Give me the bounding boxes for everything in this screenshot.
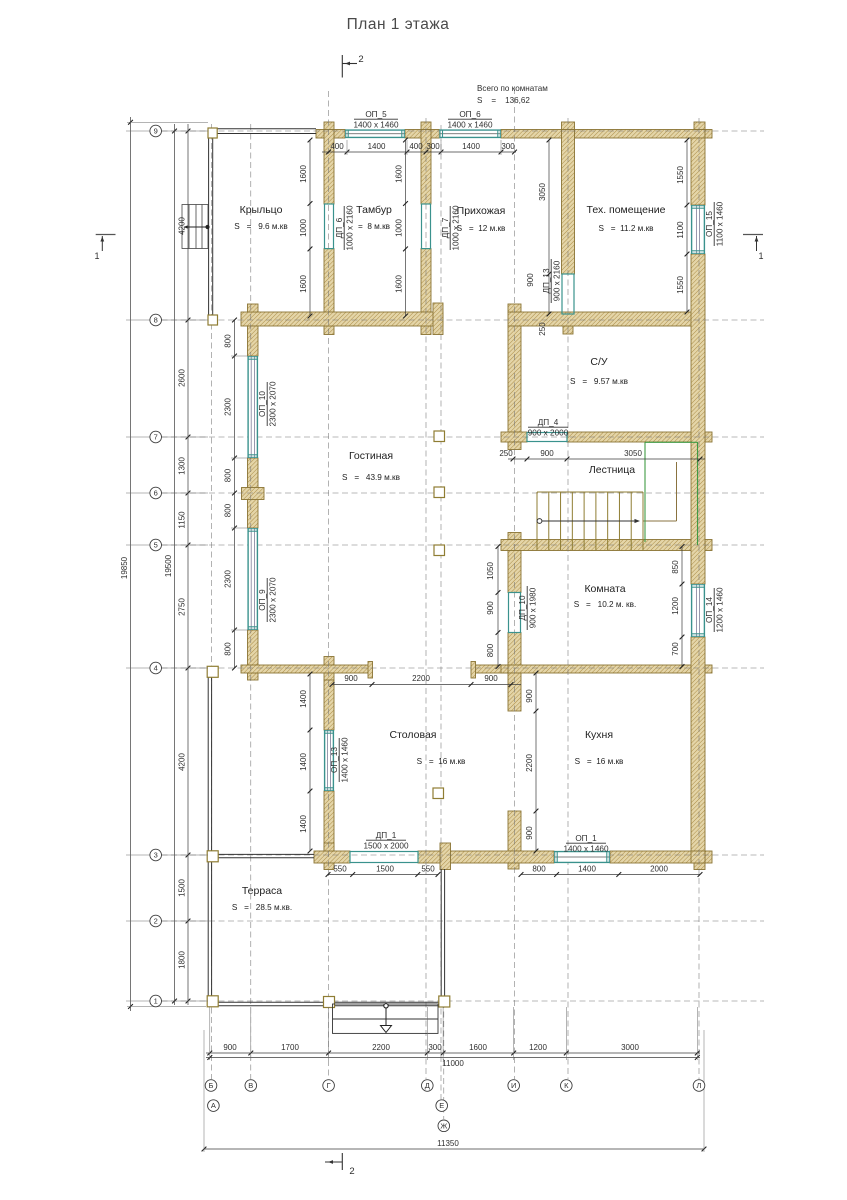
- svg-text:6: 6: [154, 489, 158, 498]
- svg-text:1000 х 2160: 1000 х 2160: [452, 205, 461, 251]
- svg-text:ОП_13: ОП_13: [330, 747, 339, 773]
- svg-text:ДП_4: ДП_4: [538, 418, 559, 427]
- svg-text:900: 900: [344, 674, 358, 683]
- svg-text:2300 х 2070: 2300 х 2070: [269, 577, 278, 623]
- svg-text:550: 550: [333, 865, 347, 874]
- svg-text:1400 х 1460: 1400 х 1460: [563, 845, 609, 854]
- svg-text:ДП_6: ДП_6: [335, 217, 344, 238]
- svg-text:550: 550: [421, 865, 435, 874]
- svg-text:850: 850: [671, 560, 680, 574]
- svg-text:800: 800: [224, 468, 233, 482]
- svg-text:Комната: Комната: [584, 583, 625, 595]
- svg-text:S = 136,62: S = 136,62: [477, 96, 530, 105]
- svg-text:S = 16 м.кв: S = 16 м.кв: [575, 757, 624, 766]
- svg-text:1600: 1600: [469, 1043, 487, 1052]
- svg-text:250: 250: [499, 449, 513, 458]
- svg-text:Крыльцо: Крыльцо: [240, 204, 283, 216]
- svg-text:1000 х 2160: 1000 х 2160: [346, 205, 355, 251]
- svg-text:1800: 1800: [178, 951, 187, 969]
- svg-text:4200: 4200: [178, 753, 187, 771]
- svg-text:План 1 этажа: План 1 этажа: [347, 16, 450, 33]
- svg-text:Прихожая: Прихожая: [457, 205, 506, 217]
- svg-text:1400: 1400: [299, 690, 308, 708]
- svg-text:900: 900: [525, 689, 534, 703]
- svg-text:900 х 1980: 900 х 1980: [529, 587, 538, 628]
- svg-text:1400 х 1460: 1400 х 1460: [353, 121, 399, 130]
- svg-text:4: 4: [154, 664, 158, 673]
- svg-text:1400 х 1460: 1400 х 1460: [341, 737, 350, 783]
- svg-text:900: 900: [223, 1043, 237, 1052]
- svg-text:ОП_15: ОП_15: [705, 211, 714, 237]
- svg-text:= 8 м.кв: = 8 м.кв: [358, 222, 390, 231]
- svg-text:700: 700: [671, 642, 680, 656]
- svg-text:800: 800: [486, 643, 495, 657]
- svg-text:1000: 1000: [395, 219, 404, 237]
- svg-text:2600: 2600: [178, 369, 187, 387]
- svg-text:300: 300: [426, 142, 440, 151]
- svg-text:Тамбур: Тамбур: [356, 204, 392, 216]
- svg-text:2200: 2200: [412, 674, 430, 683]
- svg-text:400: 400: [409, 142, 423, 151]
- svg-text:1550: 1550: [676, 166, 685, 184]
- svg-text:2: 2: [154, 917, 158, 926]
- svg-text:Терраса: Терраса: [242, 885, 282, 897]
- svg-text:К: К: [564, 1081, 569, 1090]
- svg-text:1400: 1400: [578, 865, 596, 874]
- svg-text:900: 900: [540, 449, 554, 458]
- svg-text:1: 1: [154, 997, 158, 1006]
- svg-text:1300: 1300: [178, 457, 187, 475]
- svg-text:Ж: Ж: [440, 1121, 447, 1130]
- svg-text:Гостиная: Гостиная: [349, 450, 393, 462]
- svg-text:1150: 1150: [178, 511, 187, 529]
- svg-text:Г: Г: [327, 1081, 331, 1090]
- svg-text:И: И: [511, 1081, 516, 1090]
- svg-text:11350: 11350: [437, 1139, 459, 1148]
- svg-text:Кухня: Кухня: [585, 729, 613, 741]
- svg-text:19850: 19850: [120, 556, 129, 579]
- svg-text:Всего по комнатам: Всего по комнатам: [477, 84, 548, 93]
- svg-text:1500: 1500: [376, 865, 394, 874]
- svg-text:2000: 2000: [650, 865, 668, 874]
- svg-text:2: 2: [349, 1166, 354, 1177]
- svg-text:1400 х 1460: 1400 х 1460: [447, 121, 493, 130]
- svg-text:ДП_10: ДП_10: [518, 595, 527, 621]
- svg-text:1000: 1000: [299, 219, 308, 237]
- svg-text:2300 х 2070: 2300 х 2070: [269, 381, 278, 427]
- svg-text:1100: 1100: [676, 221, 685, 239]
- svg-text:Л: Л: [697, 1081, 702, 1090]
- svg-text:800: 800: [224, 334, 233, 348]
- svg-text:1600: 1600: [395, 275, 404, 293]
- svg-text:2: 2: [358, 54, 363, 65]
- svg-text:300: 300: [501, 142, 515, 151]
- svg-text:1600: 1600: [299, 275, 308, 293]
- svg-text:8: 8: [154, 316, 158, 325]
- svg-text:S = 10.2 м. кв.: S = 10.2 м. кв.: [574, 600, 637, 609]
- svg-text:1400: 1400: [299, 753, 308, 771]
- svg-text:3050: 3050: [538, 183, 547, 201]
- svg-text:2200: 2200: [525, 754, 534, 772]
- svg-text:1500 х 2000: 1500 х 2000: [363, 842, 409, 851]
- svg-text:S = 9.57 м.кв: S = 9.57 м.кв: [570, 377, 628, 386]
- svg-text:1600: 1600: [395, 165, 404, 183]
- svg-text:Лестница: Лестница: [589, 464, 635, 476]
- svg-text:900: 900: [484, 674, 498, 683]
- svg-text:1200: 1200: [671, 597, 680, 615]
- svg-text:800: 800: [224, 642, 233, 656]
- svg-text:S = 16 м.кв: S = 16 м.кв: [417, 757, 466, 766]
- svg-text:ОП_1: ОП_1: [575, 834, 597, 843]
- svg-text:3: 3: [154, 851, 158, 860]
- svg-text:ОП_10: ОП_10: [258, 391, 267, 417]
- svg-text:2300: 2300: [224, 570, 233, 588]
- svg-text:2750: 2750: [178, 598, 187, 616]
- svg-text:2200: 2200: [372, 1043, 390, 1052]
- svg-text:С/У: С/У: [590, 356, 608, 368]
- svg-text:900: 900: [525, 826, 534, 840]
- svg-text:1400: 1400: [299, 815, 308, 833]
- svg-text:800: 800: [224, 503, 233, 517]
- svg-text:ОП_6: ОП_6: [459, 110, 481, 119]
- svg-text:1550: 1550: [676, 276, 685, 294]
- svg-text:1200: 1200: [529, 1043, 547, 1052]
- svg-text:S = 9.6 м.кв: S = 9.6 м.кв: [234, 222, 287, 231]
- svg-text:Е: Е: [439, 1101, 444, 1110]
- svg-text:3000: 3000: [621, 1043, 639, 1052]
- svg-text:900: 900: [486, 601, 495, 615]
- svg-text:ОП_14: ОП_14: [705, 597, 714, 623]
- svg-text:В: В: [248, 1081, 253, 1090]
- svg-text:1200 х 1460: 1200 х 1460: [716, 587, 725, 633]
- svg-text:900: 900: [526, 273, 535, 287]
- svg-text:7: 7: [154, 433, 158, 442]
- svg-text:Столовая: Столовая: [390, 729, 437, 741]
- svg-text:2300: 2300: [224, 398, 233, 416]
- svg-text:Д: Д: [425, 1081, 430, 1090]
- svg-text:ДП_13: ДП_13: [542, 268, 551, 294]
- svg-text:300: 300: [428, 1043, 442, 1052]
- svg-text:1: 1: [758, 251, 763, 261]
- svg-text:1500: 1500: [178, 879, 187, 897]
- svg-text:11000: 11000: [442, 1059, 464, 1068]
- svg-text:1400: 1400: [462, 142, 480, 151]
- svg-text:ОП_9: ОП_9: [258, 589, 267, 611]
- svg-text:ДП_7: ДП_7: [441, 217, 450, 238]
- svg-text:S = 11.2 м.кв: S = 11.2 м.кв: [598, 224, 653, 233]
- svg-text:S = 12 м.кв: S = 12 м.кв: [457, 224, 506, 233]
- svg-text:900 х 2000: 900 х 2000: [528, 429, 569, 438]
- svg-text:19500: 19500: [164, 554, 173, 577]
- svg-text:800: 800: [532, 865, 546, 874]
- svg-text:400: 400: [330, 142, 344, 151]
- svg-text:ОП_5: ОП_5: [365, 110, 387, 119]
- svg-text:ДП_1: ДП_1: [376, 831, 397, 840]
- svg-text:S = 43.9 м.кв: S = 43.9 м.кв: [342, 473, 400, 482]
- svg-text:Тех. помещение: Тех. помещение: [587, 204, 666, 216]
- svg-text:1: 1: [94, 251, 99, 261]
- svg-text:1400: 1400: [368, 142, 386, 151]
- svg-text:Б: Б: [209, 1081, 214, 1090]
- svg-text:1050: 1050: [486, 562, 495, 580]
- svg-text:900 х 2160: 900 х 2160: [553, 260, 562, 301]
- svg-text:А: А: [211, 1101, 216, 1110]
- svg-text:9: 9: [154, 127, 158, 136]
- svg-text:1100 х 1460: 1100 х 1460: [716, 201, 725, 246]
- svg-text:250: 250: [538, 322, 547, 336]
- svg-text:3050: 3050: [624, 449, 642, 458]
- svg-text:1600: 1600: [299, 165, 308, 183]
- svg-text:4200: 4200: [178, 217, 187, 235]
- svg-text:1700: 1700: [281, 1043, 299, 1052]
- svg-text:5: 5: [154, 541, 158, 550]
- svg-text:S = 28.5 м.кв.: S = 28.5 м.кв.: [232, 903, 292, 912]
